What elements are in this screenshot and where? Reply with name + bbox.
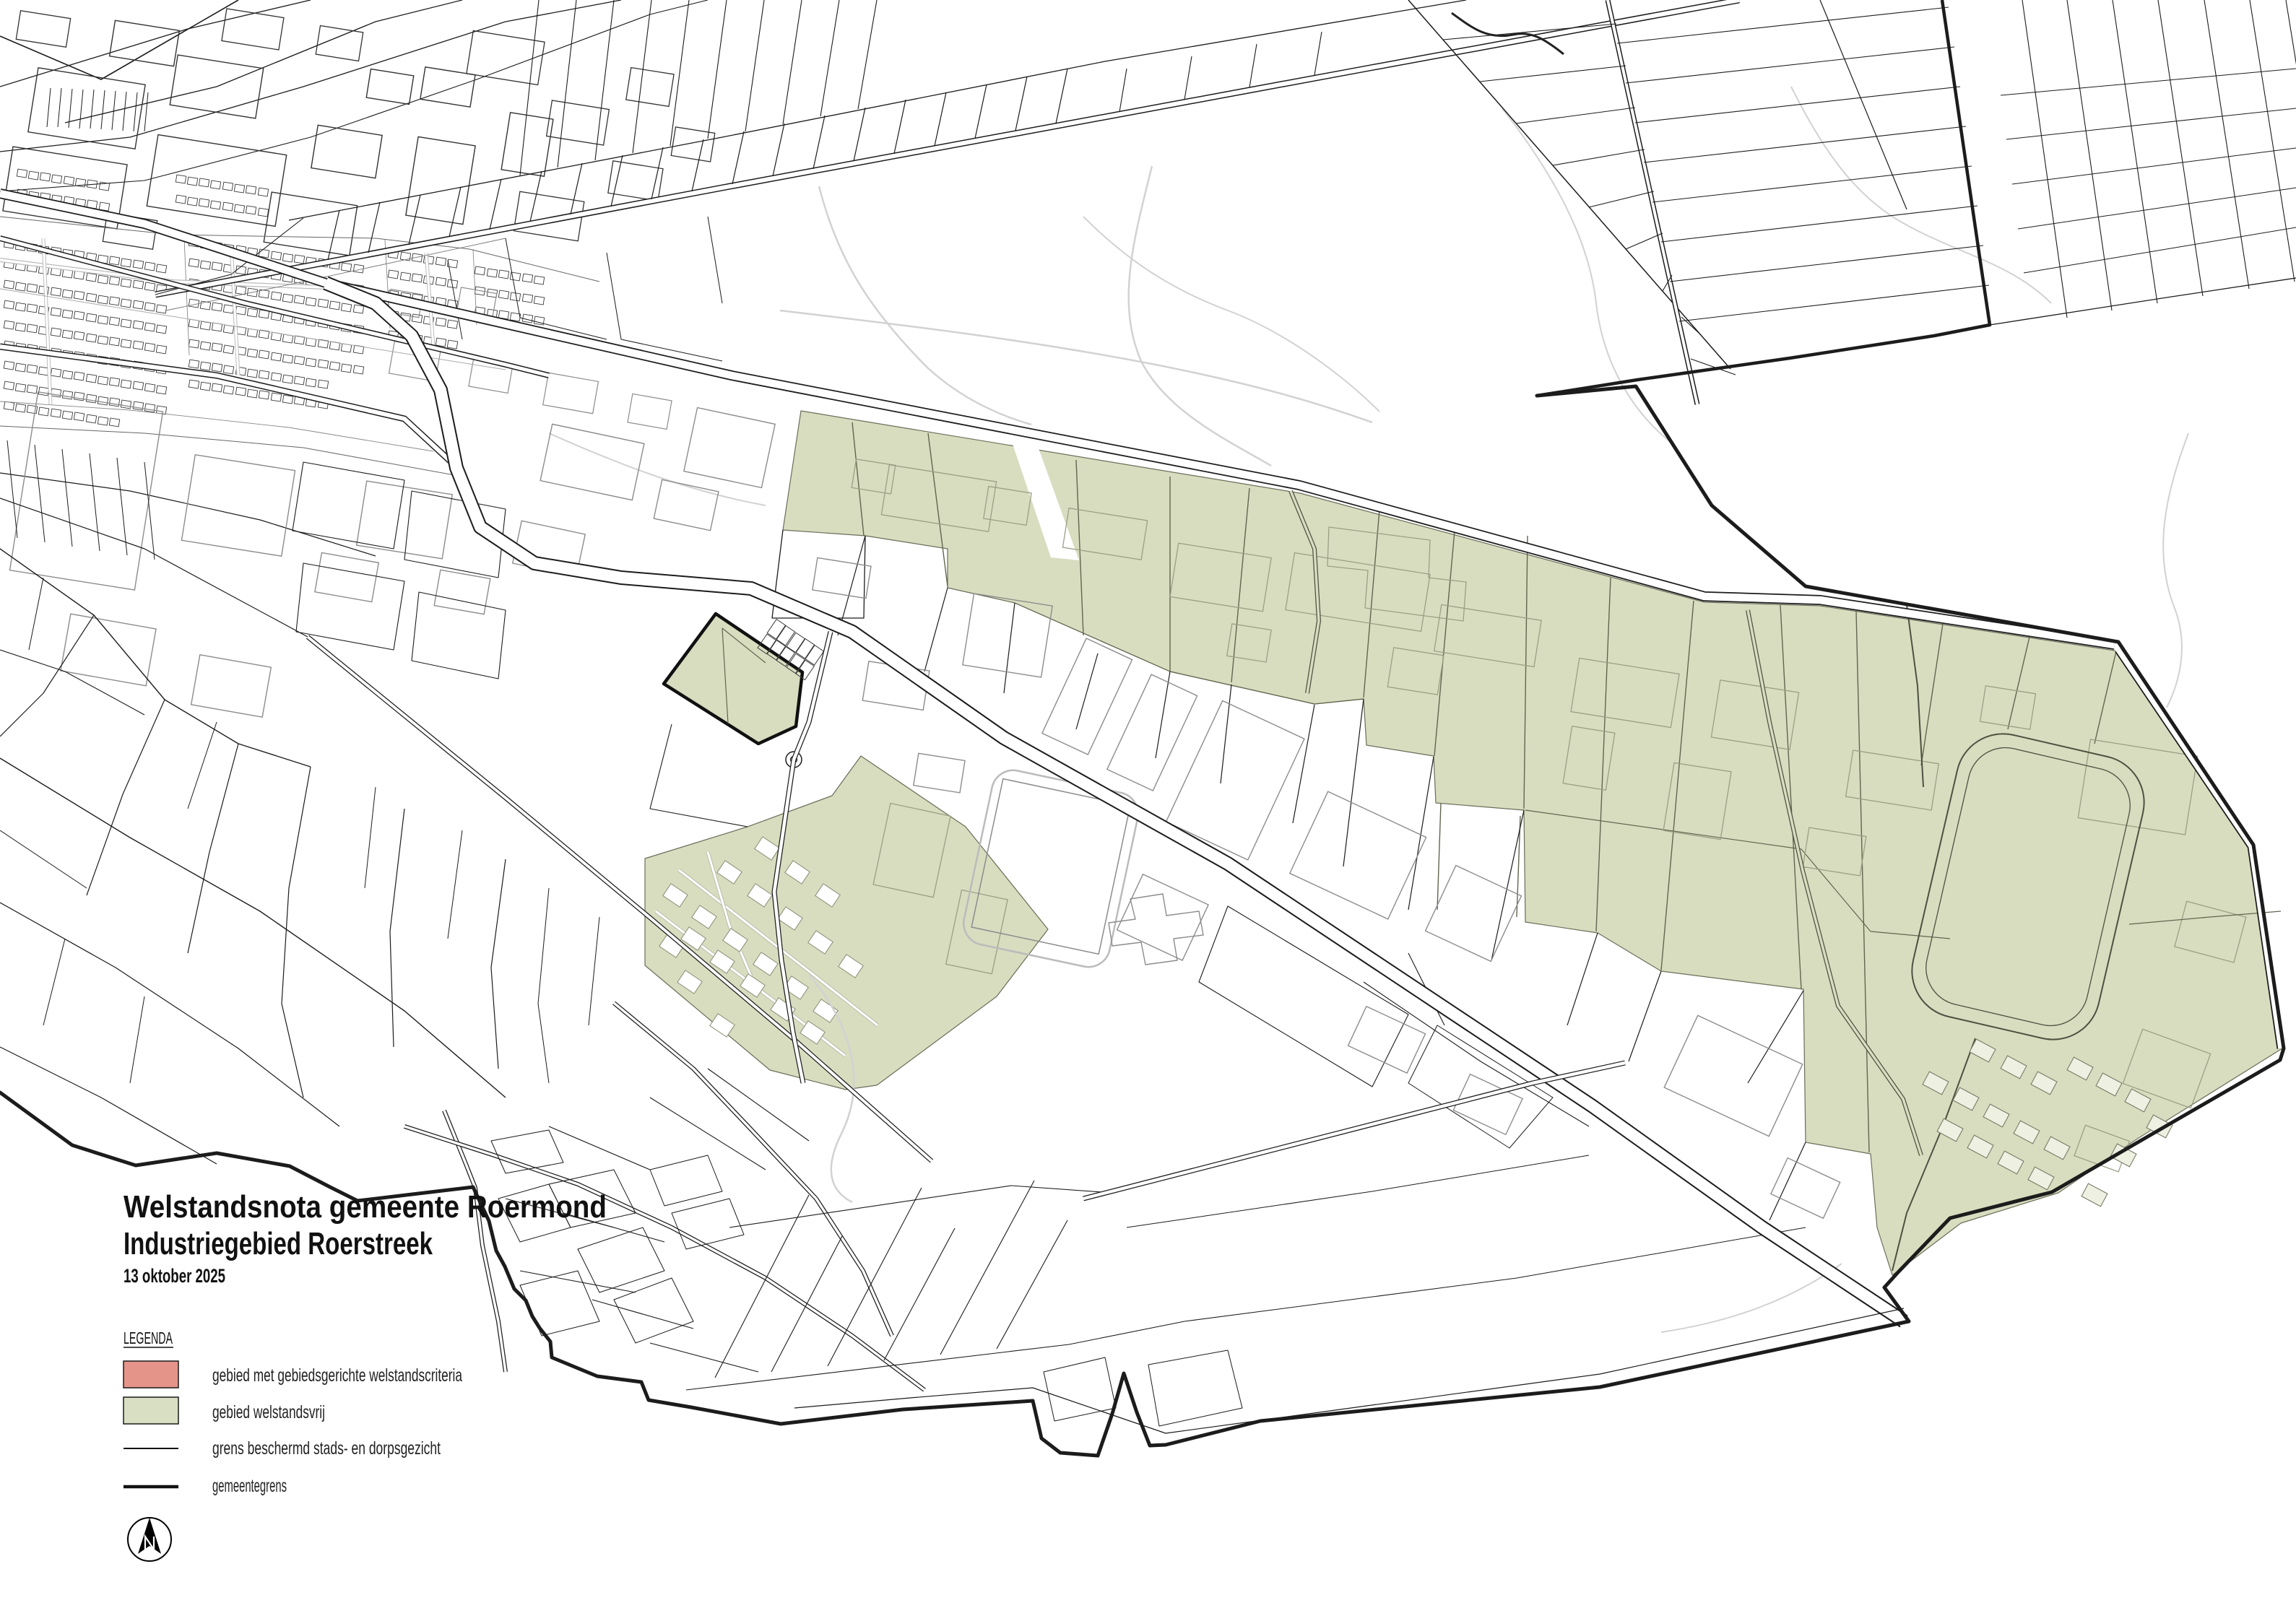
svg-text:LEGENDA: LEGENDA: [124, 1329, 173, 1347]
svg-text:gebied met gebiedsgerichte wel: gebied met gebiedsgerichte welstandscrit…: [212, 1365, 462, 1386]
svg-text:grens beschermd stads- en dorp: grens beschermd stads- en dorpsgezicht: [212, 1438, 441, 1459]
svg-text:gemeentegrens: gemeentegrens: [212, 1476, 287, 1496]
svg-text:13 oktober 2025: 13 oktober 2025: [124, 1265, 225, 1287]
svg-text:Welstandsnota gemeente Roermon: Welstandsnota gemeente Roermond: [124, 1189, 607, 1225]
svg-text:Industriegebied Roerstreek: Industriegebied Roerstreek: [124, 1226, 433, 1261]
svg-text:gebied welstandsvrij: gebied welstandsvrij: [212, 1402, 325, 1422]
